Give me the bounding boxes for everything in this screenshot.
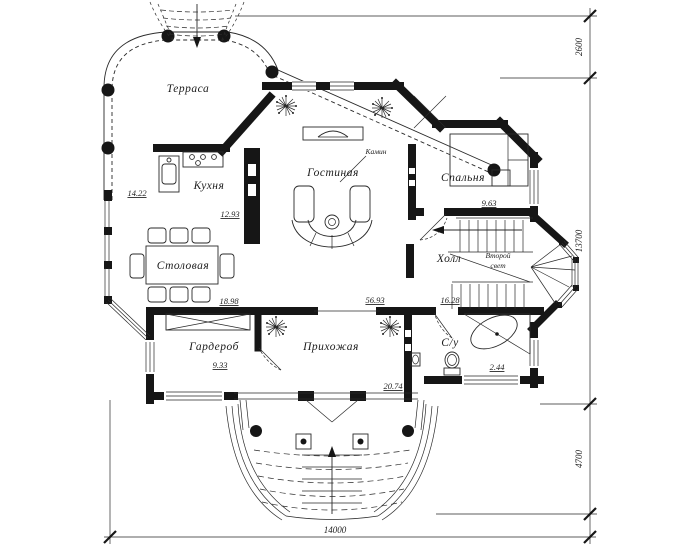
- toilet-tank: [444, 368, 460, 375]
- bay-pier: [104, 193, 112, 201]
- portal-pier: [298, 391, 314, 401]
- chair: [192, 287, 210, 302]
- plant-icon: [372, 97, 393, 118]
- room-label-kitchen: Кухня: [193, 180, 225, 192]
- bay-pier: [104, 227, 112, 235]
- dining-bay-window-diag: [106, 298, 150, 340]
- room-label-wardrobe: Гардероб: [188, 341, 240, 353]
- room-label-dining: Столовая: [157, 260, 210, 272]
- bay-pier: [104, 261, 112, 269]
- plant-icon: [276, 95, 297, 116]
- floor-plan-sheet: 2600 13700 4700 14000 Терраса Кухня Гост…: [0, 0, 700, 560]
- chair: [170, 287, 188, 302]
- portal-glazing: [234, 393, 418, 399]
- column: [102, 84, 115, 97]
- doors: [259, 96, 452, 422]
- dim-right-bottom: 4700: [574, 450, 584, 469]
- chair: [192, 228, 210, 243]
- room-label-entrance: Прихожая: [302, 341, 359, 353]
- stair-arrow: [432, 226, 444, 234]
- fireplace-label: Камин: [365, 147, 387, 156]
- plant-icon: [266, 316, 287, 337]
- portal-pier: [350, 391, 366, 401]
- column: [218, 30, 231, 43]
- column: [402, 425, 414, 437]
- area-dining: 18.98: [219, 296, 239, 306]
- bathroom-window-bottom: [462, 375, 520, 385]
- entrance-door-leaves: [306, 400, 358, 422]
- dining-bay-window: [105, 200, 109, 296]
- coffee-table: [325, 215, 339, 229]
- dim-bottom: 14000: [324, 525, 347, 535]
- up-arrow: [328, 446, 336, 457]
- wardrobe-door-leaf: [259, 348, 281, 370]
- column: [266, 66, 279, 79]
- dim-right-middle: 13700: [574, 229, 584, 252]
- plant-icon: [380, 316, 401, 337]
- room-label-terrace: Терраса: [167, 83, 209, 95]
- area-values: 14.22 12.93 18.98 56.93 16.28 9.63 9.33 …: [127, 188, 505, 391]
- wardrobe-unit: [166, 314, 250, 330]
- chair: [148, 287, 166, 302]
- kitchen-sink: [162, 164, 176, 184]
- drain: [495, 332, 499, 336]
- area-living: 56.93: [365, 295, 384, 305]
- area-hall: 16.28: [440, 295, 460, 305]
- living-room-window: [292, 81, 316, 91]
- area-bathroom: 2.44: [490, 362, 506, 372]
- area-terrace-corner: 14.22: [127, 188, 147, 198]
- floor-plan-drawing: 2600 13700 4700 14000 Терраса Кухня Гост…: [0, 0, 700, 560]
- wardrobe-window-left: [145, 340, 155, 374]
- second-light-label-2: свет: [490, 261, 506, 270]
- down-arrow: [193, 37, 201, 48]
- dim-right-top: 2600: [574, 38, 584, 57]
- room-label-bathroom: С/у: [441, 337, 459, 349]
- faucet: [167, 158, 171, 162]
- entrance-porch: [226, 400, 438, 520]
- second-light-label-1: Второй: [485, 251, 510, 260]
- column: [250, 425, 262, 437]
- chair: [130, 254, 144, 278]
- opening-cross-mark: [414, 96, 446, 128]
- column: [102, 142, 115, 155]
- sofa-arm: [350, 186, 370, 222]
- room-label-living: Гостиная: [306, 167, 359, 179]
- living-room-window: [330, 81, 354, 91]
- bathroom-door-leaf: [434, 313, 452, 338]
- bay-pier: [559, 239, 565, 245]
- wardrobe-window-bottom: [164, 391, 224, 401]
- bathroom-window: [529, 338, 539, 368]
- chair: [220, 254, 234, 278]
- area-kitchen: 12.93: [220, 209, 239, 219]
- area-bedroom: 9.63: [482, 198, 497, 208]
- area-entrance: 20.74: [383, 381, 403, 391]
- sofa-group: [292, 186, 372, 249]
- chair: [170, 228, 188, 243]
- sofa-arm: [294, 186, 314, 222]
- bathroom-fixtures: [411, 308, 530, 375]
- chair: [148, 228, 166, 243]
- area-wardrobe: 9.33: [213, 360, 228, 370]
- bedroom-window: [529, 168, 539, 206]
- room-label-bedroom: Спальня: [441, 172, 485, 184]
- room-label-hall: Холл: [436, 253, 461, 265]
